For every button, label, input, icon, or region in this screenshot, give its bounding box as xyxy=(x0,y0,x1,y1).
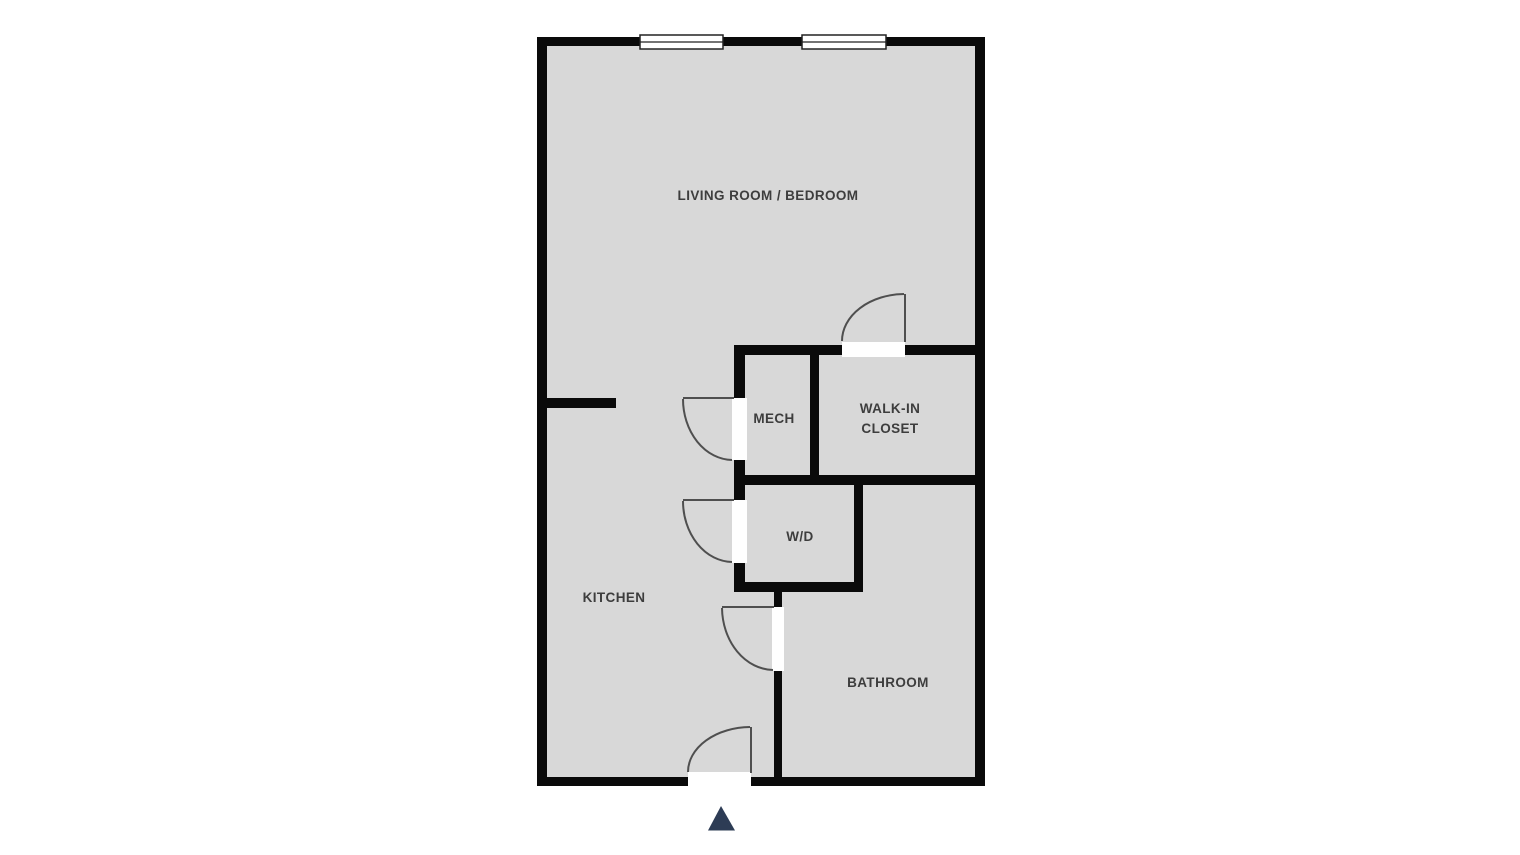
svg-text:LIVING ROOM / BEDROOM: LIVING ROOM / BEDROOM xyxy=(678,188,859,203)
svg-text:KITCHEN: KITCHEN xyxy=(583,590,646,605)
svg-text:BATHROOM: BATHROOM xyxy=(847,675,929,690)
svg-text:MECH: MECH xyxy=(753,411,794,426)
svg-text:WALK-IN: WALK-IN xyxy=(860,401,921,416)
svg-text:W/D: W/D xyxy=(786,529,813,544)
svg-text:CLOSET: CLOSET xyxy=(861,421,919,436)
